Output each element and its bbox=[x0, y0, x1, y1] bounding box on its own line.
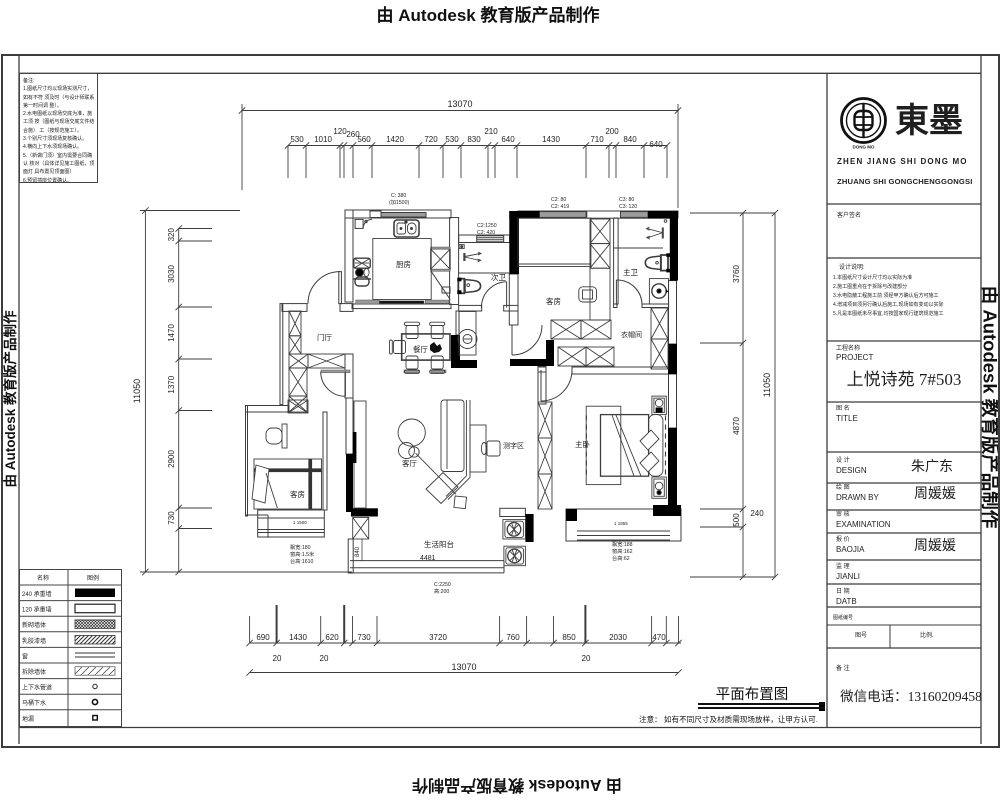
svg-text:530: 530 bbox=[445, 135, 459, 144]
svg-text:DESIGN: DESIGN bbox=[836, 466, 867, 475]
svg-text:DRAWN BY: DRAWN BY bbox=[836, 493, 879, 502]
svg-text:4481: 4481 bbox=[420, 555, 436, 562]
svg-text:BAOJIA: BAOJIA bbox=[836, 545, 865, 554]
svg-text:20: 20 bbox=[320, 654, 329, 663]
svg-text:2030: 2030 bbox=[609, 633, 627, 642]
svg-text:530: 530 bbox=[290, 135, 304, 144]
svg-text:東墨: 東墨 bbox=[895, 102, 963, 140]
svg-text:朱广东: 朱广东 bbox=[911, 459, 953, 475]
svg-text:设计说明:: 设计说明: bbox=[839, 263, 865, 271]
svg-text:620: 620 bbox=[325, 633, 339, 642]
svg-text:4870: 4870 bbox=[732, 417, 741, 435]
svg-text:730: 730 bbox=[167, 511, 176, 525]
svg-text:320: 320 bbox=[167, 227, 176, 241]
svg-text:图号: 图号 bbox=[855, 632, 867, 639]
svg-text:200: 200 bbox=[605, 127, 619, 136]
svg-text:台高:1610: 台高:1610 bbox=[290, 557, 313, 565]
svg-text:主卫: 主卫 bbox=[623, 267, 638, 277]
svg-text:1.本图纸尺寸设计尺寸均以实际为准: 1.本图纸尺寸设计尺寸均以实际为准 bbox=[833, 274, 912, 281]
svg-text:C:2250: C:2250 bbox=[434, 582, 451, 588]
svg-text:餐厅: 餐厅 bbox=[413, 345, 428, 354]
svg-text:备 注: 备 注 bbox=[836, 664, 850, 672]
svg-text:JIANLI: JIANLI bbox=[836, 572, 860, 581]
svg-text:图 名: 图 名 bbox=[836, 404, 850, 412]
svg-text:上悦诗苑 7#503: 上悦诗苑 7#503 bbox=[847, 370, 962, 389]
svg-text:窗高:1.5米: 窗高:1.5米 bbox=[290, 550, 315, 558]
svg-text:3760: 3760 bbox=[732, 265, 741, 283]
svg-text:850: 850 bbox=[562, 633, 576, 642]
svg-text:4.增减项目须另行确认后施工,现场如有变动以实际: 4.增减项目须另行确认后施工,现场如有变动以实际 bbox=[833, 301, 944, 308]
svg-text:840: 840 bbox=[355, 546, 361, 557]
svg-text:窗高:162: 窗高:162 bbox=[612, 547, 633, 555]
svg-text:工程名称: 工程名称 bbox=[836, 344, 860, 352]
svg-text:周媛媛: 周媛媛 bbox=[914, 486, 956, 502]
svg-text:飘宽:180: 飘宽:180 bbox=[290, 543, 311, 551]
svg-text:2.施工图重点在于拆除与改建部分: 2.施工图重点在于拆除与改建部分 bbox=[833, 283, 907, 290]
svg-text:客房: 客房 bbox=[290, 489, 305, 499]
svg-text:绘 图: 绘 图 bbox=[836, 483, 850, 491]
svg-text:客厅: 客厅 bbox=[402, 458, 417, 468]
svg-text:报 价: 报 价 bbox=[836, 535, 850, 543]
svg-text:EXAMINATION: EXAMINATION bbox=[836, 520, 891, 529]
svg-text:高:200: 高:200 bbox=[434, 587, 449, 595]
svg-text:次卫: 次卫 bbox=[491, 272, 506, 282]
svg-text:比例.: 比例. bbox=[920, 631, 934, 639]
svg-text:TITLE: TITLE bbox=[836, 414, 858, 423]
svg-text:设 计: 设 计 bbox=[836, 456, 850, 464]
svg-text:微信电话：13160209458: 微信电话：13160209458 bbox=[840, 689, 981, 704]
svg-text:门厅: 门厅 bbox=[317, 333, 332, 342]
svg-text:ZHEN JIANG SHI DONG MO: ZHEN JIANG SHI DONG MO bbox=[837, 157, 968, 166]
svg-text:120: 120 bbox=[333, 127, 347, 136]
svg-text:1370: 1370 bbox=[167, 375, 176, 393]
svg-text:5.凡是本图纸未尽事宜,均按国家现行建筑规范施工: 5.凡是本图纸未尽事宜,均按国家现行建筑规范施工 bbox=[833, 310, 944, 317]
svg-text:210: 210 bbox=[484, 127, 498, 136]
svg-text:主卧: 主卧 bbox=[575, 439, 590, 449]
svg-text:监 理: 监 理 bbox=[836, 562, 850, 570]
svg-text:11050: 11050 bbox=[132, 379, 142, 403]
svg-text:1010: 1010 bbox=[314, 135, 332, 144]
svg-text:3.水电隐蔽工程施工前 须经甲方确认后方可施工: 3.水电隐蔽工程施工前 须经甲方确认后方可施工 bbox=[833, 292, 939, 299]
svg-text:13070: 13070 bbox=[447, 99, 472, 109]
svg-text:图纸编号: 图纸编号 bbox=[833, 614, 853, 621]
svg-text:C2: 80: C2: 80 bbox=[551, 197, 566, 203]
svg-text:台高:62: 台高:62 bbox=[612, 554, 630, 562]
svg-text:3720: 3720 bbox=[429, 633, 447, 642]
svg-text:1430: 1430 bbox=[289, 633, 307, 642]
svg-text:710: 710 bbox=[590, 135, 604, 144]
svg-text:客户签名: 客户签名 bbox=[837, 211, 861, 219]
svg-text:720: 720 bbox=[424, 135, 438, 144]
svg-text:C2: 419: C2: 419 bbox=[551, 204, 569, 210]
svg-text:1 1500: 1 1500 bbox=[293, 520, 307, 525]
svg-text:470: 470 bbox=[652, 633, 666, 642]
svg-text:ZHUANG SHI GONGCHENGGONGSI: ZHUANG SHI GONGCHENGGONGSI bbox=[837, 177, 973, 186]
svg-text:厨房: 厨房 bbox=[396, 259, 411, 269]
svg-text:1420: 1420 bbox=[386, 135, 404, 144]
svg-text:1 1855: 1 1855 bbox=[614, 521, 628, 526]
svg-text:测字区: 测字区 bbox=[503, 441, 524, 450]
svg-text:C2: 420: C2: 420 bbox=[477, 230, 495, 236]
svg-text:DONG MO: DONG MO bbox=[853, 145, 875, 150]
svg-text:560: 560 bbox=[357, 135, 371, 144]
svg-text:840: 840 bbox=[623, 135, 637, 144]
svg-text:240: 240 bbox=[750, 509, 764, 518]
svg-text:C3: 120: C3: 120 bbox=[619, 204, 637, 210]
svg-text:730: 730 bbox=[357, 633, 371, 642]
svg-text:(加1500): (加1500) bbox=[389, 198, 409, 206]
svg-text:690: 690 bbox=[256, 633, 270, 642]
svg-text:13070: 13070 bbox=[451, 662, 476, 672]
svg-text:500: 500 bbox=[732, 513, 741, 527]
svg-text:20: 20 bbox=[273, 654, 282, 663]
svg-text:1470: 1470 bbox=[167, 324, 176, 342]
svg-text:2900: 2900 bbox=[167, 450, 176, 468]
svg-text:衣帽间: 衣帽间 bbox=[621, 330, 642, 339]
svg-text:PROJECT: PROJECT bbox=[836, 353, 873, 362]
svg-text:周媛媛: 周媛媛 bbox=[914, 538, 956, 554]
svg-text:C3: 80: C3: 80 bbox=[619, 197, 634, 203]
svg-text:客房: 客房 bbox=[546, 296, 561, 306]
svg-text:830: 830 bbox=[467, 135, 481, 144]
svg-text:640: 640 bbox=[649, 140, 663, 149]
svg-text:C: 380: C: 380 bbox=[391, 193, 406, 199]
svg-text:DATB: DATB bbox=[836, 597, 857, 606]
svg-text:11050: 11050 bbox=[762, 373, 772, 397]
svg-text:640: 640 bbox=[501, 135, 515, 144]
svg-text:3030: 3030 bbox=[167, 265, 176, 283]
svg-text:1430: 1430 bbox=[542, 135, 560, 144]
svg-text:生活阳台: 生活阳台 bbox=[424, 539, 454, 549]
svg-text:日 期: 日 期 bbox=[836, 587, 850, 595]
svg-text:20: 20 bbox=[582, 654, 591, 663]
svg-text:飘宽:188: 飘宽:188 bbox=[612, 540, 633, 548]
svg-text:审 核: 审 核 bbox=[836, 510, 850, 518]
svg-text:C2:1250: C2:1250 bbox=[477, 223, 497, 229]
svg-text:760: 760 bbox=[506, 633, 520, 642]
